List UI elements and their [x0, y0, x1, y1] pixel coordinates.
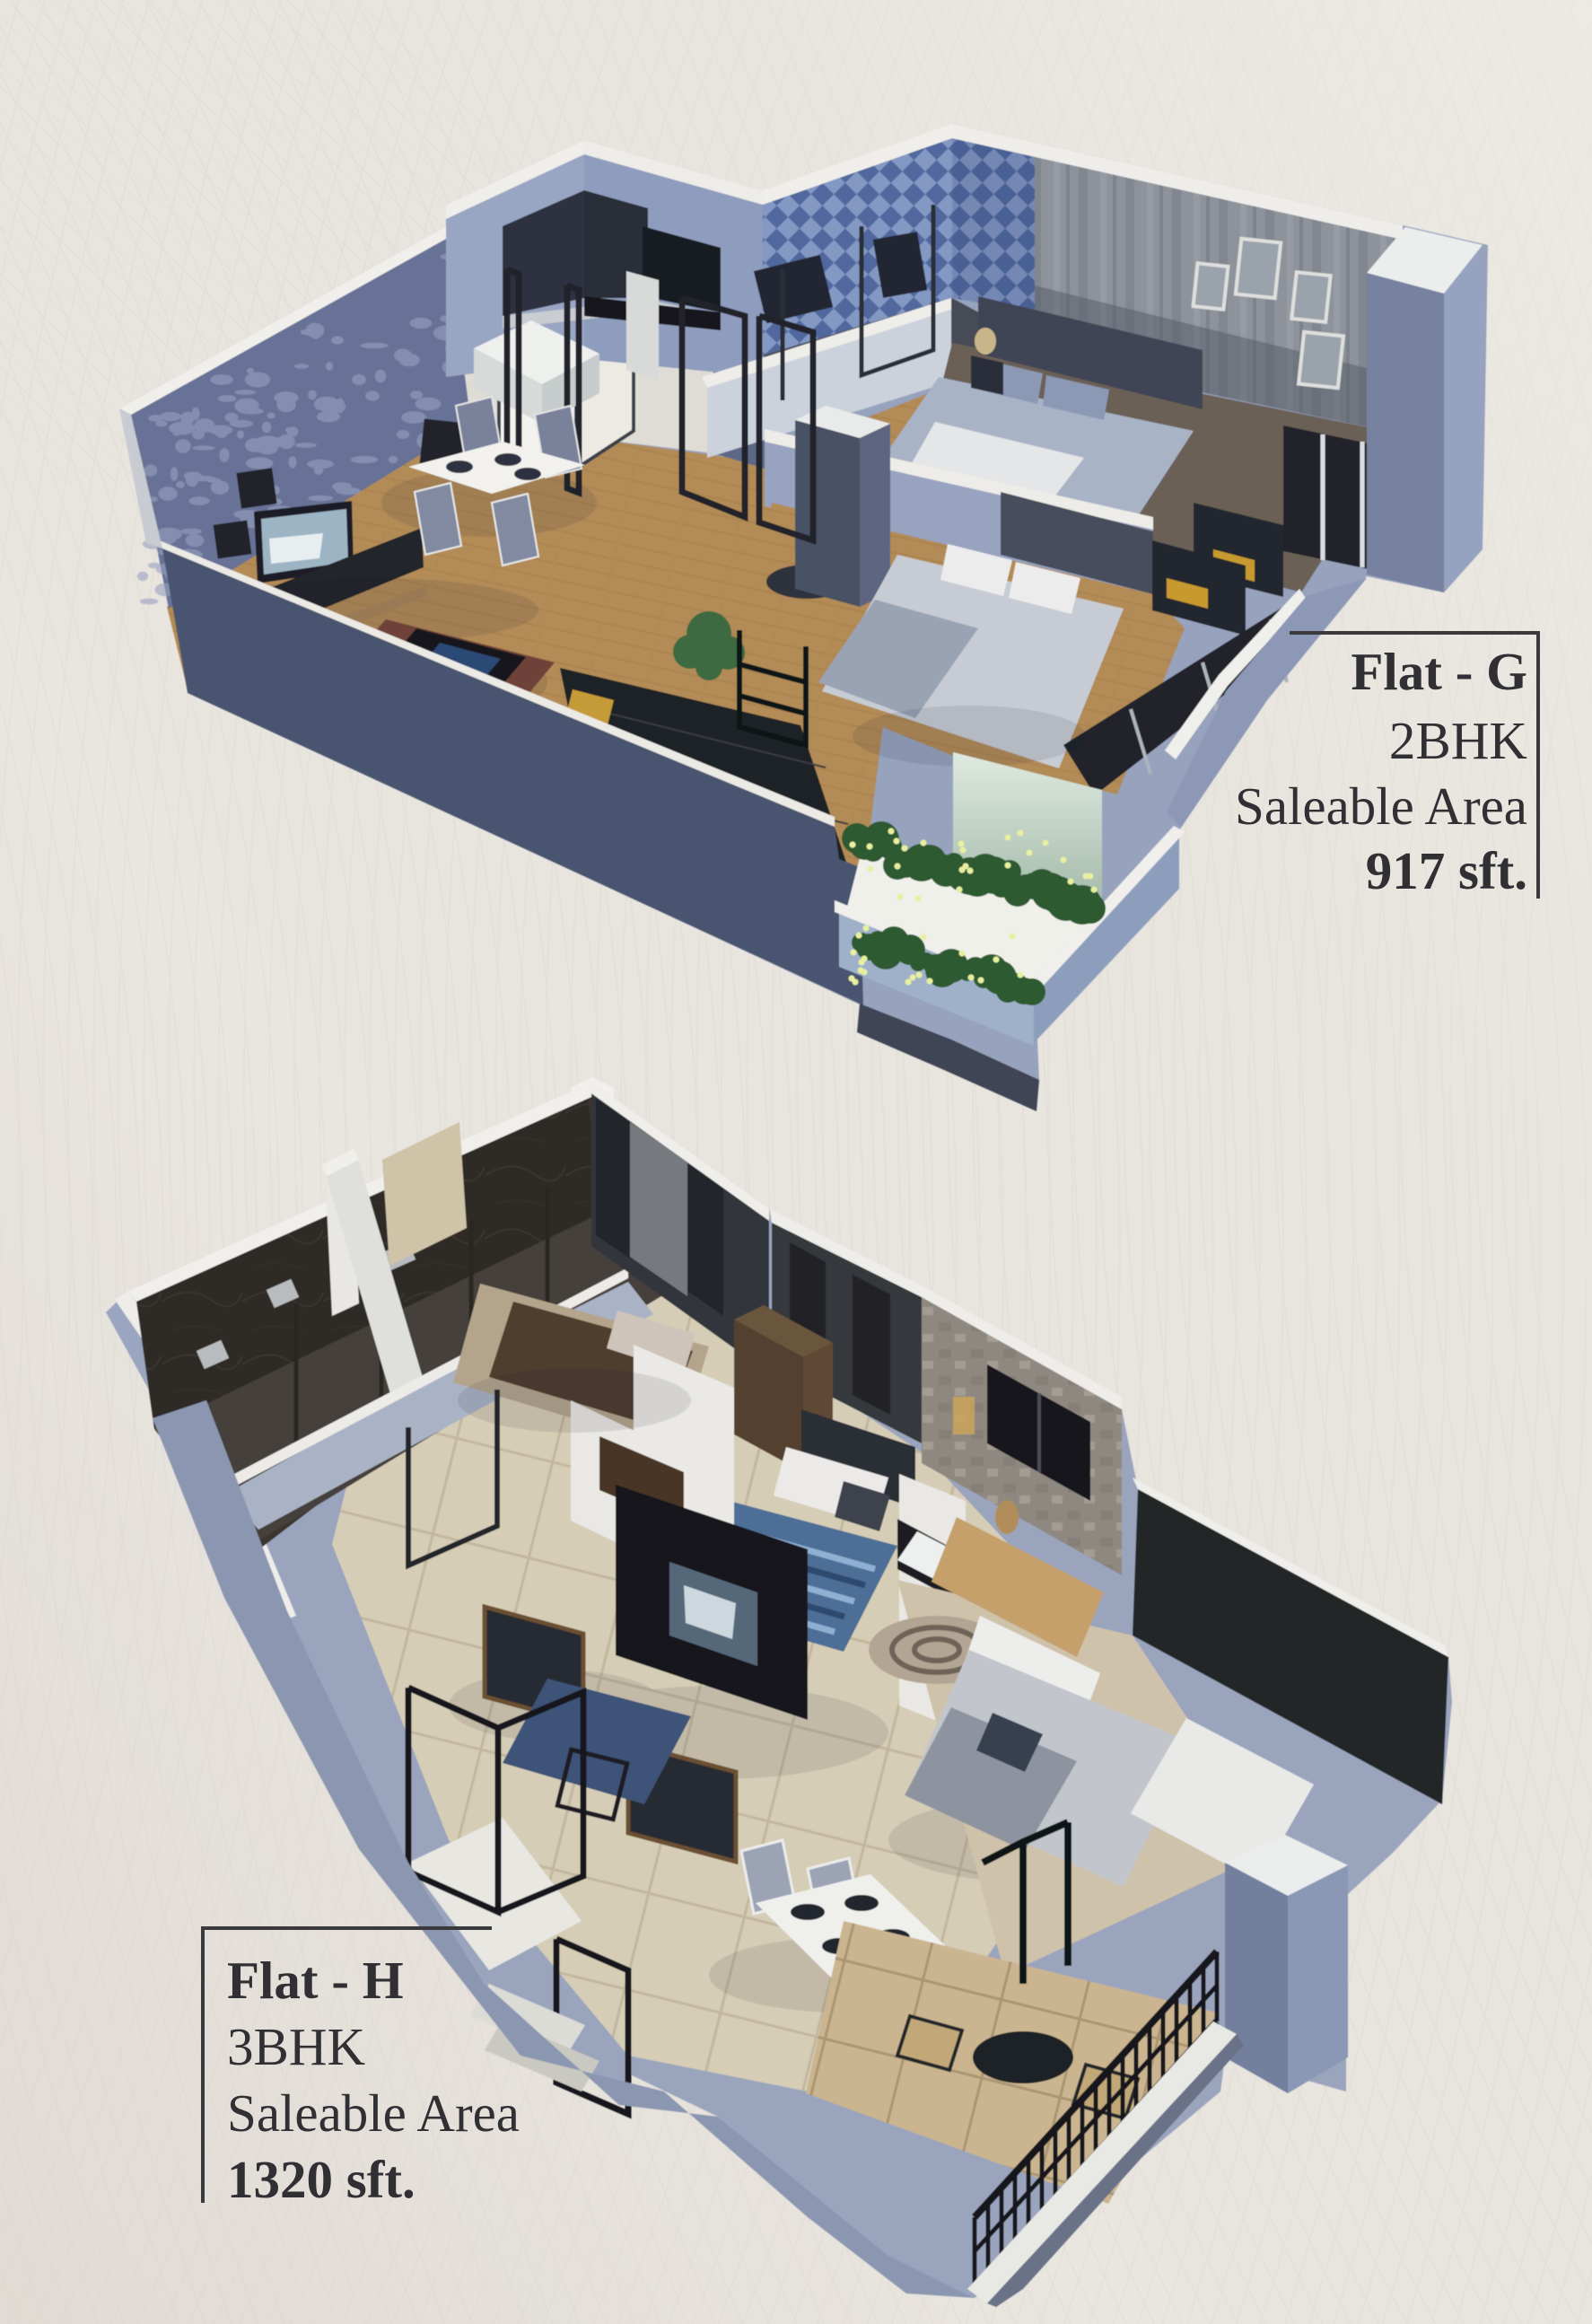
svg-text:917 sft.: 917 sft. — [1366, 841, 1527, 900]
svg-text:2BHK: 2BHK — [1389, 711, 1527, 770]
svg-text:Flat - G: Flat - G — [1351, 642, 1527, 701]
svg-text:3BHK: 3BHK — [227, 2017, 365, 2076]
svg-text:Saleable Area: Saleable Area — [227, 2083, 520, 2143]
svg-text:Saleable Area: Saleable Area — [1235, 776, 1527, 836]
svg-text:1320 sft.: 1320 sft. — [227, 2150, 415, 2209]
svg-text:Flat - H: Flat - H — [227, 1951, 404, 2010]
